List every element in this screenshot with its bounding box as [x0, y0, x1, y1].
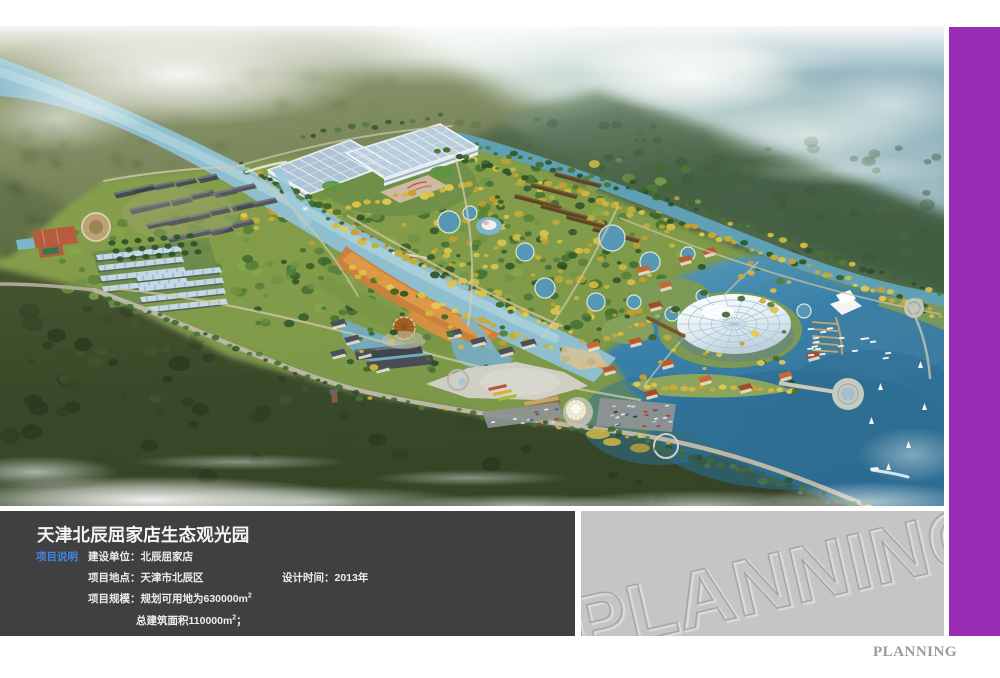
svg-text:PLANNING: PLANNING [581, 511, 944, 636]
